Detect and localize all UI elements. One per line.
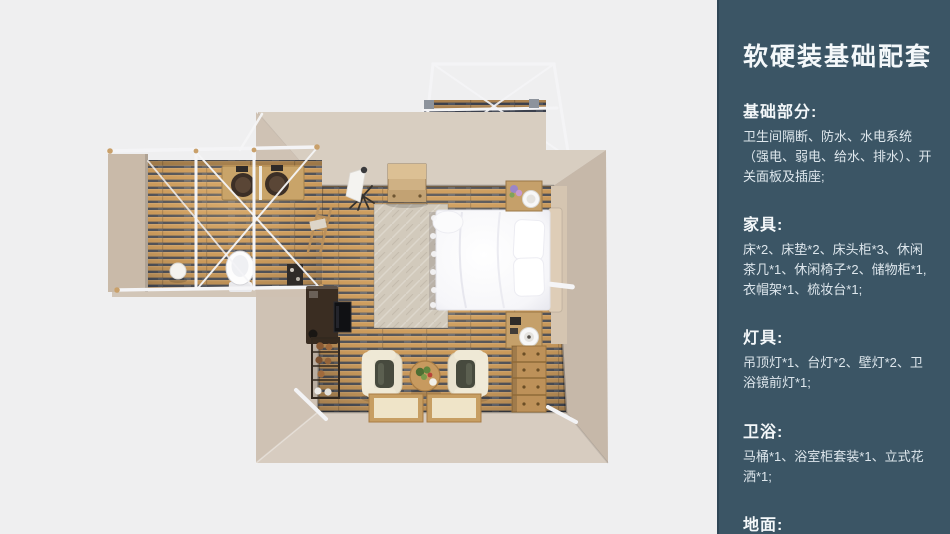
spec-section-flooring: 地面: 强化木地板、卫生间防滑防潮石塑板; <box>743 511 932 534</box>
seat-cushion <box>456 360 475 388</box>
spec-section-furniture: 家具: 床*2、床垫*2、床头柜*3、休闲茶几*1、休闲椅子*2、储物柜*1, … <box>743 211 932 300</box>
shoe-rack <box>312 338 339 398</box>
frame-bracket <box>424 100 434 109</box>
spec-heading-flooring: 地面: <box>743 511 932 534</box>
chest-of-drawers <box>512 346 546 412</box>
spec-heading-lighting: 灯具: <box>743 324 932 348</box>
throw-blanket <box>433 211 463 233</box>
spec-section-lighting: 灯具: 吊顶灯*1、台灯*2、壁灯*2、卫浴镜前灯*1; <box>743 324 932 393</box>
nightstand-bottom <box>506 312 542 348</box>
nightstand-top <box>506 181 542 211</box>
spec-section-sanitary: 卫浴: 马桶*1、浴室柜套装*1、立式花洒*1; <box>743 418 932 487</box>
spec-body-lighting: 吊顶灯*1、台灯*2、壁灯*2、卫浴镜前灯*1; <box>743 353 932 393</box>
spec-heading-sanitary: 卫浴: <box>743 418 932 442</box>
seat-cushion <box>375 360 394 388</box>
spec-heading-furniture: 家具: <box>743 211 932 235</box>
spec-body-basics: 卫生间隔断、防水、水电系统（强电、弱电、给水、排水）、开关面板及插座; <box>743 127 932 187</box>
panel-title: 软硬装基础配套 <box>743 44 932 72</box>
ball-lamp <box>169 263 187 283</box>
storage-trunk <box>386 164 428 208</box>
pillow <box>513 219 545 261</box>
round-tea-table <box>410 361 441 397</box>
spec-body-furniture: 床*2、床垫*2、床头柜*3、休闲茶几*1、休闲椅子*2、储物柜*1, 衣帽架*… <box>743 240 932 300</box>
spec-body-sanitary: 马桶*1、浴室柜套装*1、立式花洒*1; <box>743 447 932 487</box>
spec-section-basics: 基础部分: 卫生间隔断、防水、水电系统（强电、弱电、给水、排水）、开关面板及插座… <box>743 98 932 187</box>
slide-canvas: 软硬装基础配套 基础部分: 卫生间隔断、防水、水电系统（强电、弱电、给水、排水）… <box>0 0 950 534</box>
spec-heading-basics: 基础部分: <box>743 98 932 122</box>
annex-left-wall <box>108 154 148 292</box>
info-panel: 软硬装基础配套 基础部分: 卫生间隔断、防水、水电系统（强电、弱电、给水、排水）… <box>717 0 950 534</box>
floorplan-svg <box>0 0 717 534</box>
floorplan-render <box>0 0 717 534</box>
pillow <box>513 257 544 296</box>
frame-bracket <box>529 99 539 108</box>
double-bed <box>429 208 562 312</box>
